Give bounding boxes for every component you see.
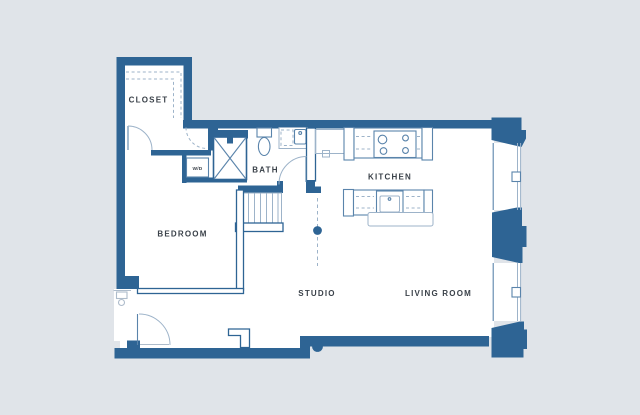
corner-pier-top bbox=[492, 118, 527, 148]
bath-label: BATH bbox=[252, 166, 278, 175]
top-wall bbox=[183, 120, 492, 129]
bottom-wall-right bbox=[300, 336, 489, 347]
counter-end-panel bbox=[422, 128, 433, 161]
entry-step-block bbox=[117, 276, 140, 289]
stove-burners bbox=[374, 131, 416, 158]
closet-floor bbox=[120, 60, 186, 128]
bath-bottom-wall bbox=[238, 186, 283, 194]
closet-right-wall bbox=[184, 57, 193, 129]
lower-floor-strip bbox=[120, 335, 304, 350]
left-wall bbox=[117, 57, 126, 283]
bath-right-wall bbox=[307, 128, 316, 181]
washer-dryer: W/D bbox=[187, 158, 209, 177]
closet-label: CLOSET bbox=[129, 96, 169, 105]
column bbox=[313, 226, 322, 235]
kitchen-label: KITCHEN bbox=[368, 173, 412, 182]
fridge-tall-cabinet bbox=[344, 128, 354, 161]
bedroom-right-wall bbox=[237, 190, 244, 290]
vanity-sink bbox=[279, 128, 308, 149]
island-counter bbox=[354, 190, 425, 215]
window-mullion bbox=[512, 172, 521, 182]
floor-plan-canvas: W/D BATH bbox=[0, 0, 640, 415]
toilet-fixture bbox=[257, 128, 272, 156]
bottom-wall-left bbox=[115, 348, 304, 359]
column bbox=[312, 341, 323, 352]
bedroom-label: BEDROOM bbox=[157, 230, 207, 239]
floor-plan: W/D BATH bbox=[0, 0, 640, 415]
bedroom-top-wall bbox=[151, 150, 211, 156]
island-bar-overhang bbox=[368, 213, 433, 227]
stove-outline bbox=[374, 131, 416, 158]
living-room-label: LIVING ROOM bbox=[405, 289, 472, 298]
island-end-panel bbox=[424, 190, 433, 215]
window-mullion bbox=[512, 288, 521, 298]
middle-pier bbox=[492, 208, 527, 264]
bath-door-jamb bbox=[277, 181, 283, 193]
studio-label: STUDIO bbox=[298, 289, 335, 298]
island-end-panel bbox=[344, 190, 354, 217]
shaft-notch bbox=[227, 136, 233, 144]
shaft bbox=[213, 130, 249, 180]
toilet-bowl bbox=[258, 138, 270, 156]
bedroom-bottom-wall bbox=[138, 289, 244, 294]
corner-pier-bottom bbox=[492, 322, 528, 358]
toilet-tank bbox=[257, 128, 272, 137]
closet-top-wall bbox=[117, 57, 193, 66]
washer-dryer-label: W/D bbox=[193, 166, 203, 172]
